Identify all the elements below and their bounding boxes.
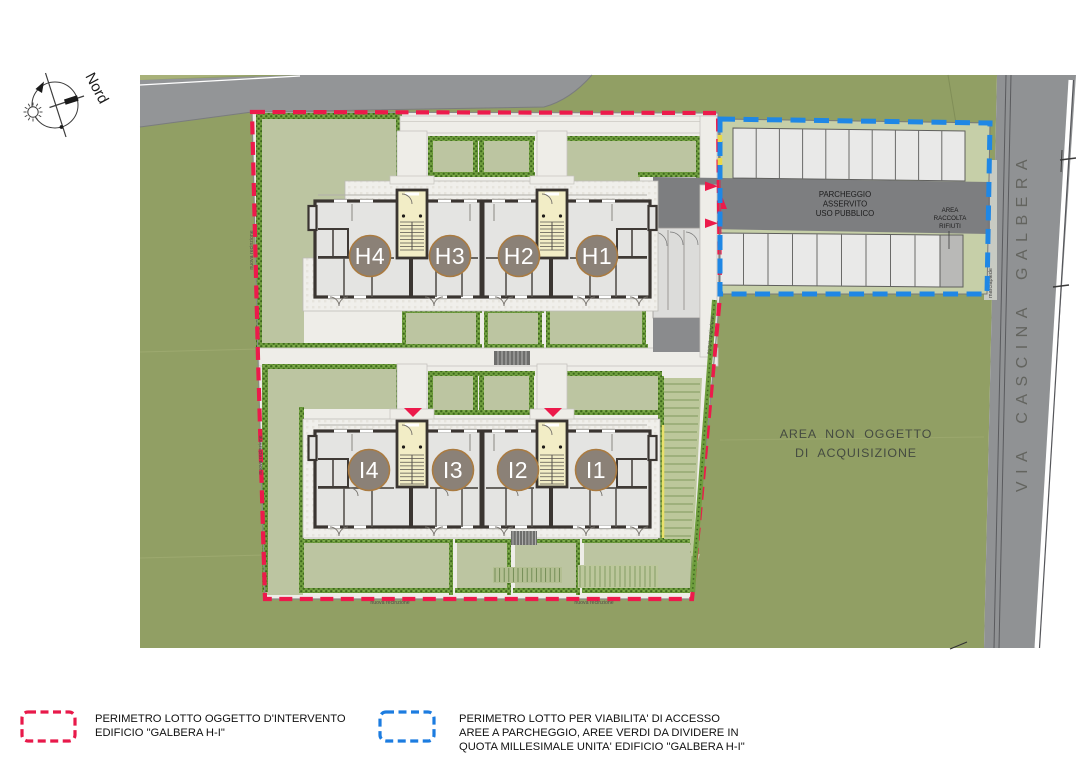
svg-text:AREA: AREA [942,207,960,214]
svg-text:QUOTA MILLESIMALE UNITA' EDIFI: QUOTA MILLESIMALE UNITA' EDIFICIO "GALBE… [459,741,745,753]
svg-text:I1: I1 [586,457,606,483]
svg-text:H1: H1 [582,243,612,269]
svg-text:I3: I3 [443,457,463,483]
svg-text:USO PUBBLICO: USO PUBBLICO [816,209,875,218]
svg-text:nuova recinzione: nuova recinzione [574,600,613,606]
svg-text:RACCOLTA: RACCOLTA [934,215,968,222]
svg-text:PARCHEGGIO: PARCHEGGIO [819,190,871,199]
svg-text:EDIFICIO "GALBERA H-I": EDIFICIO "GALBERA H-I" [95,727,225,739]
svg-text:H2: H2 [504,243,534,269]
svg-text:AREE A PARCHEGGIO, AREE VERDI: AREE A PARCHEGGIO, AREE VERDI DA DIVIDER… [459,727,739,739]
svg-text:PERIMETRO LOTTO PER VIABILITA': PERIMETRO LOTTO PER VIABILITA' DI ACCESS… [459,713,720,725]
svg-text:RIFIUTI: RIFIUTI [939,223,961,230]
svg-text:nuova recinzione: nuova recinzione [370,600,409,606]
svg-text:Nord: Nord [81,70,111,107]
svg-text:VIA CASCINA GALBERA: VIA CASCINA GALBERA [1014,152,1031,492]
svg-text:DI ACQUISIZIONE: DI ACQUISIZIONE [795,446,917,460]
svg-text:H4: H4 [355,243,385,269]
svg-text:I4: I4 [359,457,379,483]
svg-text:AREA NON OGGETTO: AREA NON OGGETTO [780,427,933,441]
svg-text:nuova recinzione: nuova recinzione [249,230,255,269]
svg-text:H3: H3 [435,243,465,269]
svg-text:I2: I2 [508,457,528,483]
svg-text:PERIMETRO LOTTO OGGETTO D'INTE: PERIMETRO LOTTO OGGETTO D'INTERVENTO [95,713,346,725]
svg-text:ASSERVITO: ASSERVITO [823,200,867,209]
svg-text:nuova recinzione: nuova recinzione [258,435,264,474]
